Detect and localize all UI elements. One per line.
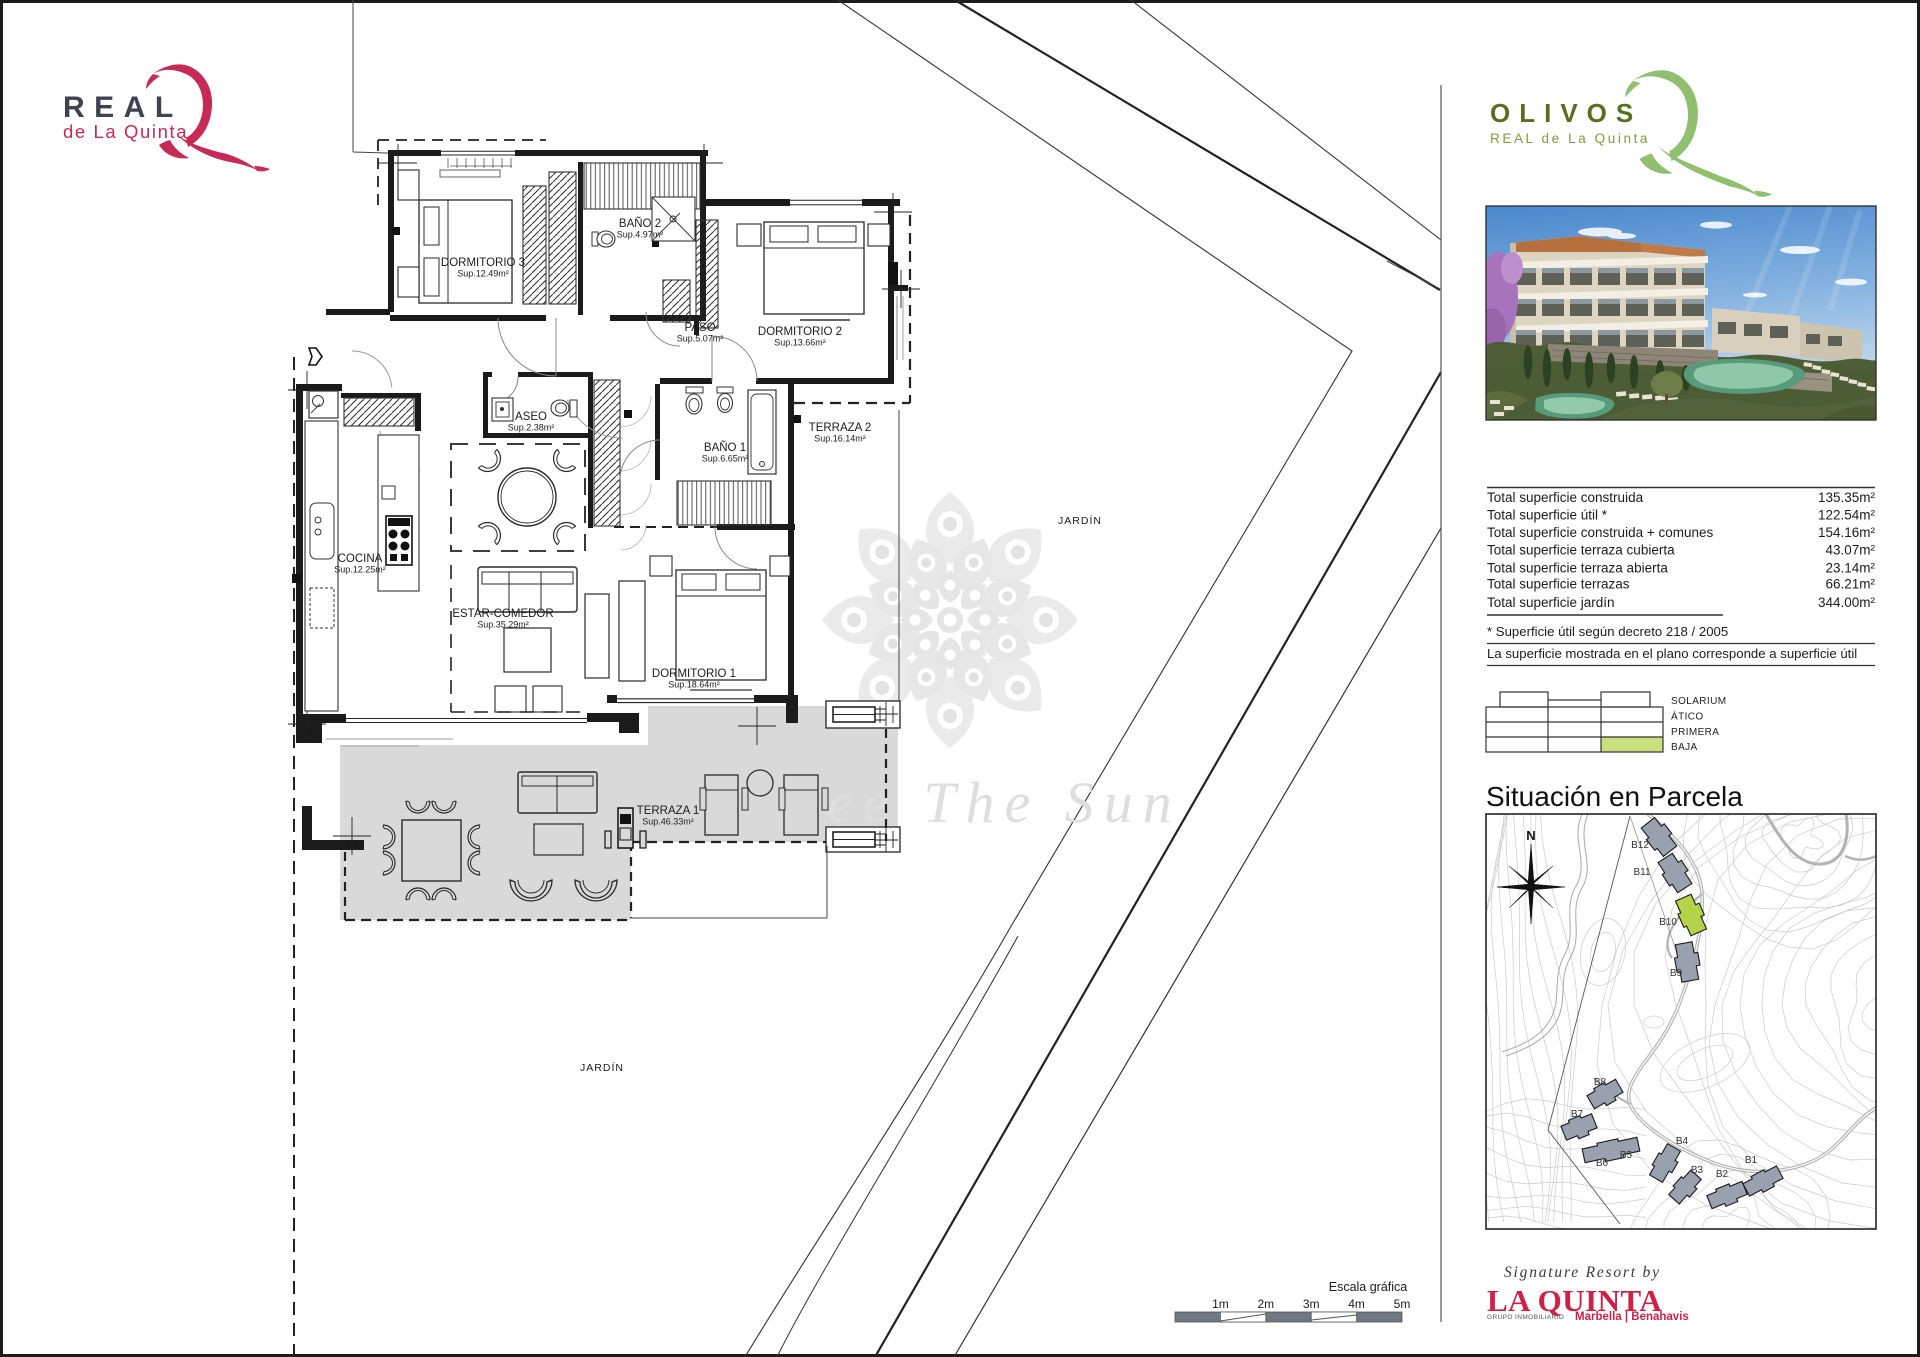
svg-text:Sup.2.38m²: Sup.2.38m²	[508, 423, 555, 433]
svg-text:BAÑO 2: BAÑO 2	[619, 217, 661, 230]
svg-text:ASEO: ASEO	[515, 411, 547, 423]
svg-text:Total superficie terrazas: Total superficie terrazas	[1487, 577, 1630, 592]
svg-text:Sup.12.25m²: Sup.12.25m²	[334, 565, 386, 575]
svg-text:344.00m²: 344.00m²	[1818, 595, 1876, 610]
svg-text:3m: 3m	[1303, 1297, 1320, 1311]
svg-text:B10: B10	[1659, 917, 1677, 928]
svg-text:122.54m²: 122.54m²	[1818, 508, 1876, 523]
svg-text:4m: 4m	[1348, 1297, 1365, 1311]
svg-text:Sup.4.97m²: Sup.4.97m²	[617, 230, 664, 240]
svg-text:COCINA: COCINA	[338, 553, 383, 565]
svg-text:5m: 5m	[1394, 1297, 1411, 1311]
svg-text:DORMITORIO 1: DORMITORIO 1	[652, 668, 736, 680]
svg-text:REAL de La Quinta: REAL de La Quinta	[1490, 131, 1650, 146]
svg-text:B8: B8	[1594, 1077, 1607, 1088]
svg-text:Sup.18.64m²: Sup.18.64m²	[668, 680, 720, 690]
svg-text:ÁTICO: ÁTICO	[1671, 710, 1704, 723]
svg-text:Sup.5.07m²: Sup.5.07m²	[677, 334, 724, 344]
svg-text:23.14m²: 23.14m²	[1825, 561, 1875, 576]
svg-text:B9: B9	[1670, 968, 1683, 979]
svg-text:Sup.12.49m²: Sup.12.49m²	[457, 269, 509, 279]
svg-text:Escala gráfica: Escala gráfica	[1329, 1280, 1408, 1294]
svg-text:2m: 2m	[1257, 1297, 1274, 1311]
svg-text:B5: B5	[1620, 1150, 1633, 1161]
svg-text:Total superficie jardín: Total superficie jardín	[1487, 595, 1615, 610]
svg-text:See The Sun: See The Sun	[788, 770, 1182, 835]
svg-text:BAJA: BAJA	[1671, 742, 1698, 753]
svg-text:Signature Resort by: Signature Resort by	[1504, 1264, 1661, 1281]
svg-text:La superficie mostrada en el p: La superficie mostrada en el plano corre…	[1487, 646, 1857, 661]
svg-text:TERRAZA 1: TERRAZA 1	[637, 805, 700, 817]
svg-text:B7: B7	[1571, 1109, 1584, 1120]
svg-text:PASO: PASO	[684, 322, 715, 334]
svg-text:* Superficie útil según decret: * Superficie útil según decreto 218 / 20…	[1487, 624, 1728, 639]
svg-text:B1: B1	[1745, 1155, 1758, 1166]
svg-text:Total superficie construida: Total superficie construida	[1487, 490, 1644, 505]
svg-text:Sup.13.66m²: Sup.13.66m²	[774, 338, 826, 348]
svg-text:B12: B12	[1631, 840, 1649, 851]
svg-text:B2: B2	[1716, 1169, 1729, 1180]
svg-text:Sup.6.65m²: Sup.6.65m²	[702, 454, 749, 464]
svg-text:Sup.46.33m²: Sup.46.33m²	[642, 817, 694, 827]
svg-text:B6: B6	[1596, 1158, 1609, 1169]
svg-text:PRIMERA: PRIMERA	[1671, 727, 1719, 738]
svg-text:BAÑO 1: BAÑO 1	[704, 441, 746, 454]
svg-text:1m: 1m	[1212, 1297, 1229, 1311]
svg-text:B4: B4	[1676, 1136, 1689, 1147]
svg-text:43.07m²: 43.07m²	[1825, 543, 1875, 558]
svg-text:GRUPO INMOBILIARIO: GRUPO INMOBILIARIO	[1487, 1314, 1564, 1321]
svg-text:Sup.35.29m²: Sup.35.29m²	[477, 620, 529, 630]
svg-text:OLIVOS: OLIVOS	[1490, 98, 1642, 128]
svg-text:Marbella | Benahavis: Marbella | Benahavis	[1575, 1311, 1689, 1323]
svg-text:B3: B3	[1691, 1165, 1704, 1176]
svg-text:Total superficie útil *: Total superficie útil *	[1487, 508, 1608, 523]
svg-text:REAL: REAL	[63, 91, 183, 124]
svg-text:DORMITORIO 3: DORMITORIO 3	[441, 257, 525, 269]
svg-text:Situación en Parcela: Situación en Parcela	[1486, 781, 1743, 812]
svg-text:B11: B11	[1633, 867, 1650, 878]
svg-text:TERRAZA 2: TERRAZA 2	[809, 422, 872, 434]
svg-text:Total superficie terraza cubie: Total superficie terraza cubierta	[1487, 543, 1675, 558]
svg-text:ESTAR-COMEDOR: ESTAR-COMEDOR	[452, 608, 553, 620]
svg-text:135.35m²: 135.35m²	[1818, 490, 1876, 505]
svg-text:JARDÍN: JARDÍN	[580, 1061, 624, 1074]
svg-text:Sup.16.14m²: Sup.16.14m²	[814, 434, 866, 444]
svg-text:SOLARIUM: SOLARIUM	[1671, 696, 1726, 707]
svg-text:Total superficie construida +: Total superficie construida + comunes	[1487, 525, 1713, 540]
svg-text:JARDÍN: JARDÍN	[1058, 514, 1102, 527]
svg-text:Total superficie terraza abier: Total superficie terraza abierta	[1487, 561, 1668, 576]
svg-text:N: N	[1526, 828, 1535, 843]
svg-text:de La Quinta: de La Quinta	[63, 121, 188, 142]
svg-text:66.21m²: 66.21m²	[1825, 577, 1875, 592]
svg-text:DORMITORIO 2: DORMITORIO 2	[758, 326, 842, 338]
svg-text:154.16m²: 154.16m²	[1818, 525, 1876, 540]
